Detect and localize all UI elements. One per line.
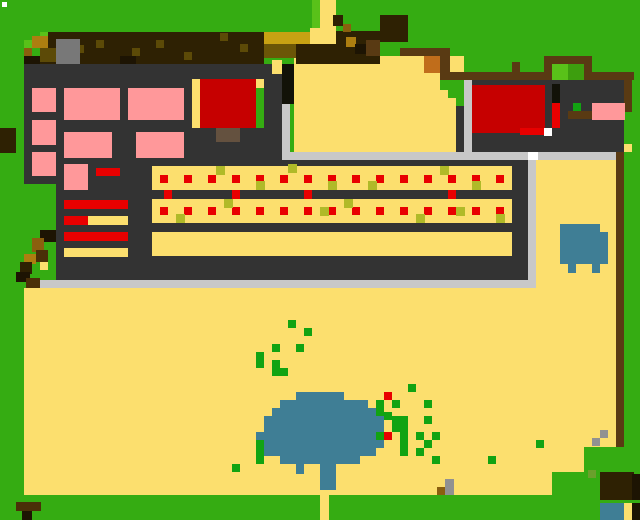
plaza-doorway-shadow <box>272 60 282 74</box>
crop-dots-red-row1 <box>184 175 192 183</box>
top-path[interactable] <box>312 0 320 30</box>
market-counters[interactable] <box>64 232 128 241</box>
cursor-dot <box>2 2 7 7</box>
stair-diagonal <box>26 278 40 288</box>
shed-east[interactable] <box>568 111 592 119</box>
barn[interactable] <box>256 79 264 88</box>
crop-dots-red-row1 <box>448 175 456 183</box>
field-crop-dots-green <box>272 360 280 376</box>
crop-dots-red-row2 <box>304 207 312 215</box>
crop-dots-red-row2 <box>328 207 336 215</box>
border-white-pixel <box>528 152 538 160</box>
crop-dots-olive <box>256 181 265 190</box>
soil-band-debris <box>220 33 228 41</box>
bottom-right-features <box>624 503 632 520</box>
main-field[interactable] <box>24 472 552 495</box>
crop-dots-red-row2 <box>184 207 192 215</box>
field-crop-dots-green <box>400 448 408 456</box>
field-crop-dots-green <box>288 320 296 328</box>
crop-dots-red-row2 <box>376 207 384 215</box>
shed-east[interactable] <box>472 85 545 133</box>
crop-dots-red-gap <box>164 190 172 199</box>
farmhouse-windows <box>64 132 112 158</box>
field-crop-dots-green <box>392 400 400 408</box>
pond[interactable] <box>280 456 360 464</box>
field-crop-dots-green <box>272 344 280 352</box>
barn[interactable] <box>200 79 256 128</box>
tree-cluster-left <box>32 36 48 48</box>
game-map[interactable] <box>0 0 640 520</box>
pond[interactable] <box>256 432 384 440</box>
market-counters[interactable] <box>64 248 128 257</box>
crop-dots-olive <box>224 199 233 208</box>
shed-east[interactable] <box>552 103 560 128</box>
water-trough[interactable] <box>592 264 600 273</box>
water-trough[interactable] <box>568 264 576 273</box>
tree-blob-top <box>366 40 380 56</box>
market-counters[interactable] <box>64 200 128 209</box>
path-borders <box>528 160 536 288</box>
crop-dots-red-row2 <box>352 207 360 215</box>
field-crop-dots-green <box>424 400 432 408</box>
field-crop-dots-green <box>280 368 288 376</box>
crop-dots-red-gap <box>448 190 456 199</box>
field-crop-dots-green <box>304 328 312 336</box>
barn[interactable] <box>192 79 200 128</box>
field-crop-dots-green <box>488 456 496 464</box>
farmhouse-windows <box>64 164 88 190</box>
pond[interactable] <box>264 424 384 432</box>
fence-east <box>616 152 624 447</box>
barn[interactable] <box>256 88 264 128</box>
crop-dots-red-row2 <box>208 207 216 215</box>
field-crop-dots-green <box>424 440 432 448</box>
soil-band-debris <box>184 52 192 60</box>
tree-blob-top <box>343 24 351 32</box>
crop-dots-red-row1 <box>304 175 312 183</box>
tree-cluster-left <box>24 40 32 48</box>
field-crop-dots-green <box>256 440 264 464</box>
bottom-right-features <box>592 438 600 446</box>
plaza-doorway-shadow <box>282 64 294 104</box>
crop-dots-olive <box>496 214 505 223</box>
soil-band-debris <box>120 56 136 64</box>
crop-dots-red-row2 <box>280 207 288 215</box>
west-brown-crate <box>0 128 16 153</box>
crop-dots-olive <box>456 207 465 216</box>
crop-dots-red-row1 <box>496 175 504 183</box>
field-crop-dots-green <box>376 432 384 440</box>
crop-dots-olive <box>176 214 185 223</box>
crop-dots-olive <box>440 166 449 175</box>
farmhouse-windows <box>128 88 184 120</box>
field-crop-dots-green <box>384 412 392 420</box>
field-crop-dots-green <box>416 448 424 456</box>
farmhouse-windows <box>136 132 184 158</box>
fences-north <box>440 72 634 80</box>
shed-east[interactable] <box>520 128 544 135</box>
soil-band-debris <box>132 48 140 56</box>
farmhouse-windows <box>32 120 56 145</box>
chimney <box>56 39 80 65</box>
crop-dots-olive <box>328 181 337 190</box>
path-borders <box>288 152 616 160</box>
crop-dots-red-row2 <box>160 207 168 215</box>
bottom-right-features <box>588 470 596 478</box>
soil-band <box>264 32 310 44</box>
crop-tables[interactable] <box>152 232 512 256</box>
field-crop-dots-green <box>392 416 408 432</box>
crop-dots-olive <box>288 164 297 173</box>
crop-dots-olive <box>320 207 329 216</box>
crop-dots-red-row1 <box>400 175 408 183</box>
field-crop-dots-green <box>376 400 384 408</box>
pond[interactable] <box>352 456 360 464</box>
field-crop-dots-green <box>424 416 432 424</box>
gate-bush <box>552 64 568 80</box>
crop-dots-olive <box>368 181 377 190</box>
market-counters[interactable] <box>88 216 128 225</box>
soil-band-debris <box>240 44 248 52</box>
crop-dots-red-row2 <box>472 207 480 215</box>
bottom-left-log <box>22 511 32 520</box>
crop-dots-red-gap <box>304 190 312 199</box>
plaza-corner-steps <box>448 90 464 98</box>
fences-north <box>424 56 440 73</box>
farmhouse-windows <box>32 88 56 112</box>
crop-dots-red-row1 <box>232 175 240 183</box>
crop-dots-red-row2 <box>400 207 408 215</box>
field-crop-dots-green <box>536 440 544 448</box>
barn[interactable] <box>216 128 240 142</box>
crop-dots-red-row1 <box>208 175 216 183</box>
farmhouse-windows <box>32 152 56 176</box>
field-crop-dots-green <box>376 408 384 416</box>
tree-cluster-left <box>40 48 56 62</box>
market-counters[interactable] <box>64 216 88 225</box>
crop-dots-red-gap <box>232 190 240 199</box>
water-trough[interactable] <box>560 224 600 264</box>
signpost[interactable] <box>445 479 454 495</box>
bottom-left-log <box>16 502 41 511</box>
pond[interactable] <box>264 416 384 424</box>
crop-dots-red-row2 <box>256 207 264 215</box>
crop-dots-red-row1 <box>424 175 432 183</box>
soil-band <box>264 44 296 58</box>
pond[interactable] <box>320 464 336 472</box>
crop-dots-olive <box>344 199 353 208</box>
pond[interactable] <box>264 440 384 448</box>
field-crop-dots-green <box>256 352 264 368</box>
crop-dots-red-row1 <box>280 175 288 183</box>
pond[interactable] <box>320 472 336 490</box>
pond[interactable] <box>264 448 376 456</box>
signpost[interactable] <box>437 487 445 495</box>
crop-dots-red-row2 <box>232 207 240 215</box>
bottom-right-features <box>632 503 640 520</box>
bottom-right-features <box>600 503 624 520</box>
plaza-corner-steps <box>440 80 464 90</box>
market-counters[interactable] <box>96 168 120 176</box>
sand-pixel-east <box>624 144 632 152</box>
bottom-right-features <box>600 430 608 438</box>
fences-north <box>624 72 632 112</box>
bottom-right-features <box>632 474 640 500</box>
field-crop-dots-green <box>232 464 240 472</box>
field-crop-dots-green <box>408 384 416 392</box>
stair-diagonal <box>36 250 48 262</box>
crop-dots-red-row2 <box>448 207 456 215</box>
crop-dots-red-row1 <box>376 175 384 183</box>
pond[interactable] <box>272 408 376 416</box>
shed-east[interactable] <box>544 128 552 136</box>
gate-bush <box>568 64 584 80</box>
market-counters[interactable] <box>40 261 48 270</box>
farmhouse-windows <box>64 88 120 120</box>
field-crop-dots-red <box>384 432 392 440</box>
water-trough[interactable] <box>600 232 608 264</box>
shed-east[interactable] <box>552 84 560 103</box>
crop-dots-olive <box>216 166 225 175</box>
pond[interactable] <box>280 400 368 408</box>
crop-dots-olive <box>472 181 481 190</box>
crop-dots-red-row1 <box>352 175 360 183</box>
shed-east[interactable] <box>573 103 581 111</box>
tree-blob-top <box>333 15 343 26</box>
path-borders <box>464 80 472 152</box>
field-crop-dots-red <box>384 392 392 400</box>
tree-blob-top <box>380 15 408 42</box>
shed-east[interactable] <box>592 103 625 120</box>
tree-cluster-left <box>24 48 32 56</box>
field-crop-dots-green <box>400 432 408 448</box>
crop-dots-olive <box>416 214 425 223</box>
crop-dots-red-row2 <box>424 207 432 215</box>
soil-band-debris <box>96 40 104 48</box>
pond[interactable] <box>296 464 304 474</box>
crop-dots-red-row1 <box>160 175 168 183</box>
bottom-path[interactable] <box>320 495 329 520</box>
fences-north <box>512 62 520 72</box>
field-crop-dots-green <box>416 432 424 440</box>
pond[interactable] <box>296 392 344 400</box>
fences-north <box>440 48 450 73</box>
field-crop-dots-green <box>432 432 440 440</box>
plaza-corner-steps <box>456 98 464 106</box>
path-borders <box>32 280 536 288</box>
soil-band-debris <box>156 40 164 48</box>
bottom-right-features <box>600 472 634 500</box>
field-crop-dots-green <box>432 456 440 464</box>
soil-band <box>296 44 336 64</box>
field-crop-dots-green <box>296 344 304 352</box>
